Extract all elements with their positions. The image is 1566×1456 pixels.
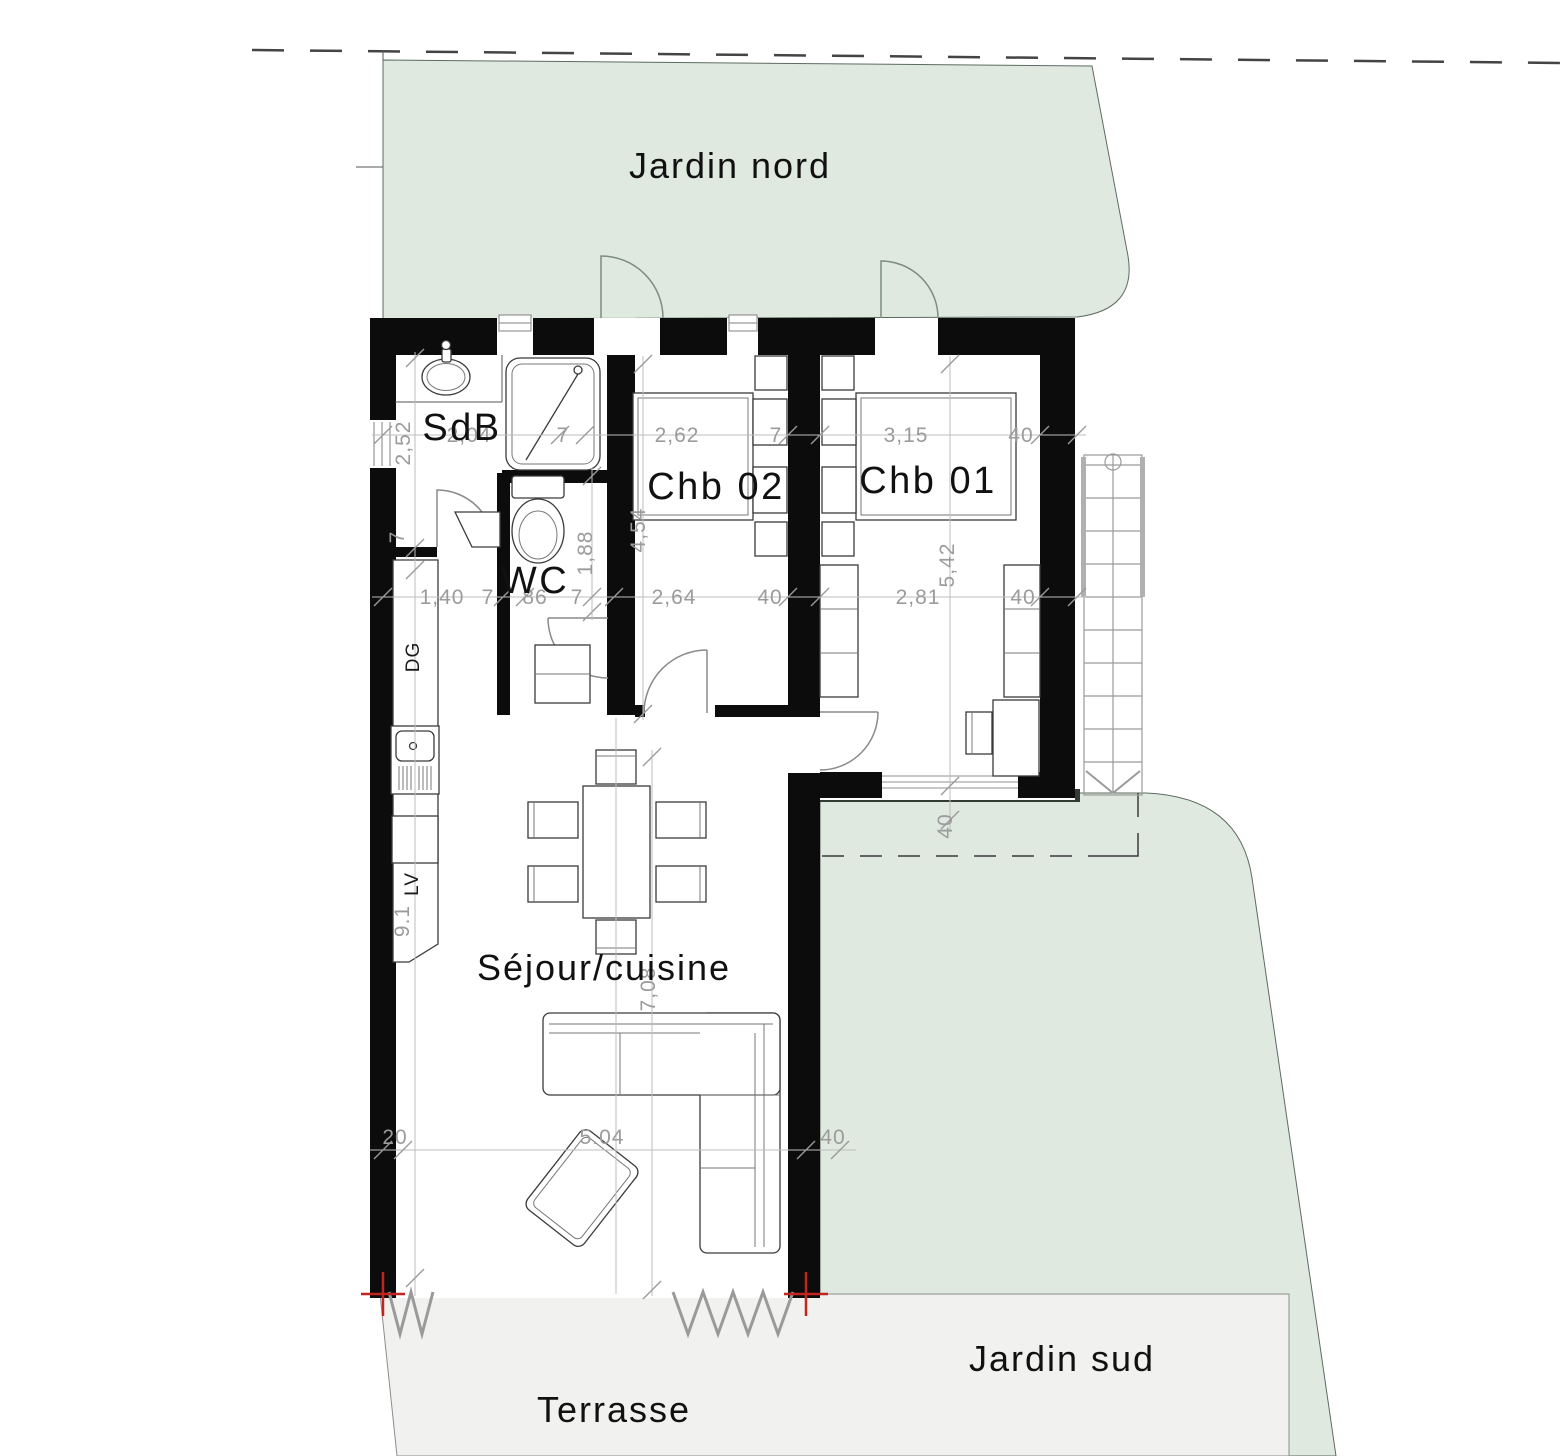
nightstand [822,356,854,390]
dim-text: 40 [1008,424,1033,447]
dim-text: 7 [386,531,409,544]
wall-north-4 [758,318,875,355]
dim-text: 2,52 [392,421,415,466]
wc-label: WC [501,560,569,602]
dining-chair [656,802,706,838]
wall-bedrooms-divider [788,355,820,705]
dim-text: 1,88 [574,531,597,576]
dim-text: 7 [557,424,570,447]
wall-east [1040,318,1075,798]
dim-text: 40 [757,586,782,609]
desk [993,700,1039,776]
stair-rail-left [1081,457,1086,597]
nightstand [822,522,854,556]
lv-label: LV [402,872,423,896]
dim-text: 1,40 [420,586,465,609]
dim-text: 40 [820,1126,845,1149]
dining-chair [656,866,706,902]
garden-north-label: Jardin nord [629,145,831,186]
dim-text: 20 [382,1126,407,1149]
desk-chair [966,712,992,754]
floor-plan-page: 2,04 7 2,62 7 3,15 40 1,40 7 86 7 2,64 4… [0,0,1566,1456]
property-boundary-left [356,50,383,318]
living-label: Séjour/cuisine [477,947,731,988]
wardrobe-left [820,565,858,697]
toilet [512,476,564,563]
wall-north-1 [370,318,497,355]
dim-text: 9.1 [391,905,414,937]
wall-sdb-south [390,547,437,557]
hall-cupboard [535,645,590,703]
dim-text: 7 [571,586,584,609]
dim-text: 7 [770,424,783,447]
wall-hall [715,705,820,717]
dining-chair [528,866,578,902]
wall-living-east [788,773,820,1298]
wardrobe-right [1004,565,1040,697]
bathroom-label: SdB [422,407,501,449]
bedroom2-label: Chb 02 [647,466,785,508]
pillow [822,399,856,445]
dim-text: 5.04 [580,1126,625,1149]
bedroom1-label: Chb 01 [859,460,997,502]
nightstand [755,356,787,390]
dg-label: DG [403,642,424,673]
terrace-label: Terrasse [537,1389,691,1430]
dim-text: 4,54 [627,508,650,553]
dim-text: 40 [1010,586,1035,609]
shower [506,358,600,470]
garden-south-label: Jardin sud [969,1338,1155,1379]
dim-text: 2,81 [896,586,941,609]
nightstand [755,522,787,556]
dim-text: 5,42 [936,543,959,588]
window-north-2 [729,315,757,331]
window-north-1 [499,315,531,331]
pillow [822,467,856,513]
dining-chair [528,802,578,838]
garden-north-area [383,60,1129,319]
wall-chb1-south-1 [820,772,882,798]
dim-text: 2,62 [655,424,700,447]
dim-text: 2,64 [652,586,697,609]
wall-north-2 [533,318,594,355]
wall-north-5 [938,318,1040,355]
dim-text: 3,15 [884,424,929,447]
floor-plan-drawing: 2,04 7 2,62 7 3,15 40 1,40 7 86 7 2,64 4… [0,0,1566,1456]
wall-north-3 [660,318,727,355]
stair-rail-right [1140,457,1145,597]
dim-text: 7 [482,586,495,609]
exterior-stair [1081,454,1145,795]
dim-text: 40 [934,813,957,838]
